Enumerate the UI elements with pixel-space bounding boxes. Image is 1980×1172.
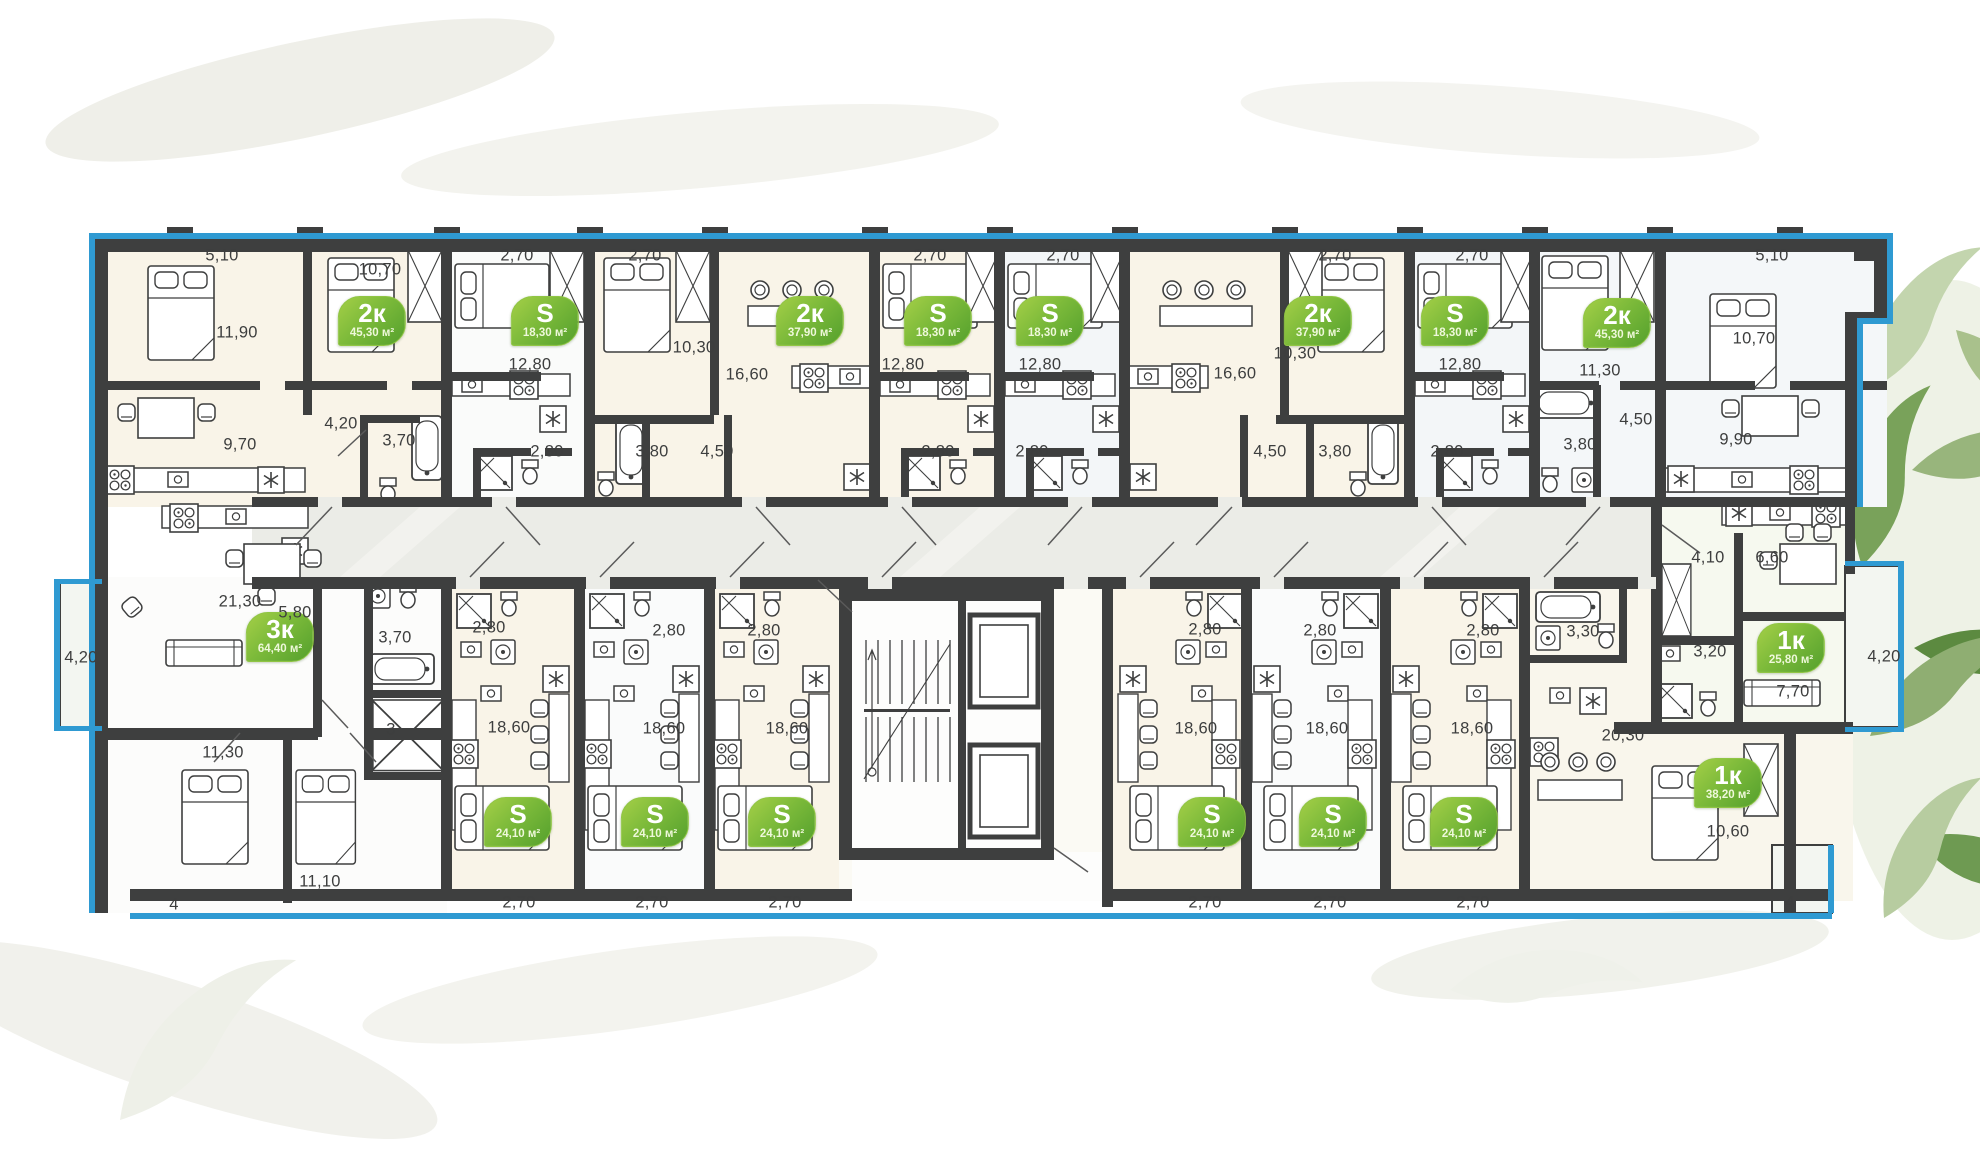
floorplan-drawing (0, 0, 1980, 1172)
floorplan-canvas: 2к45,30 м²S18,30 м²2к37,90 м²S18,30 м²S1… (0, 0, 1980, 1172)
